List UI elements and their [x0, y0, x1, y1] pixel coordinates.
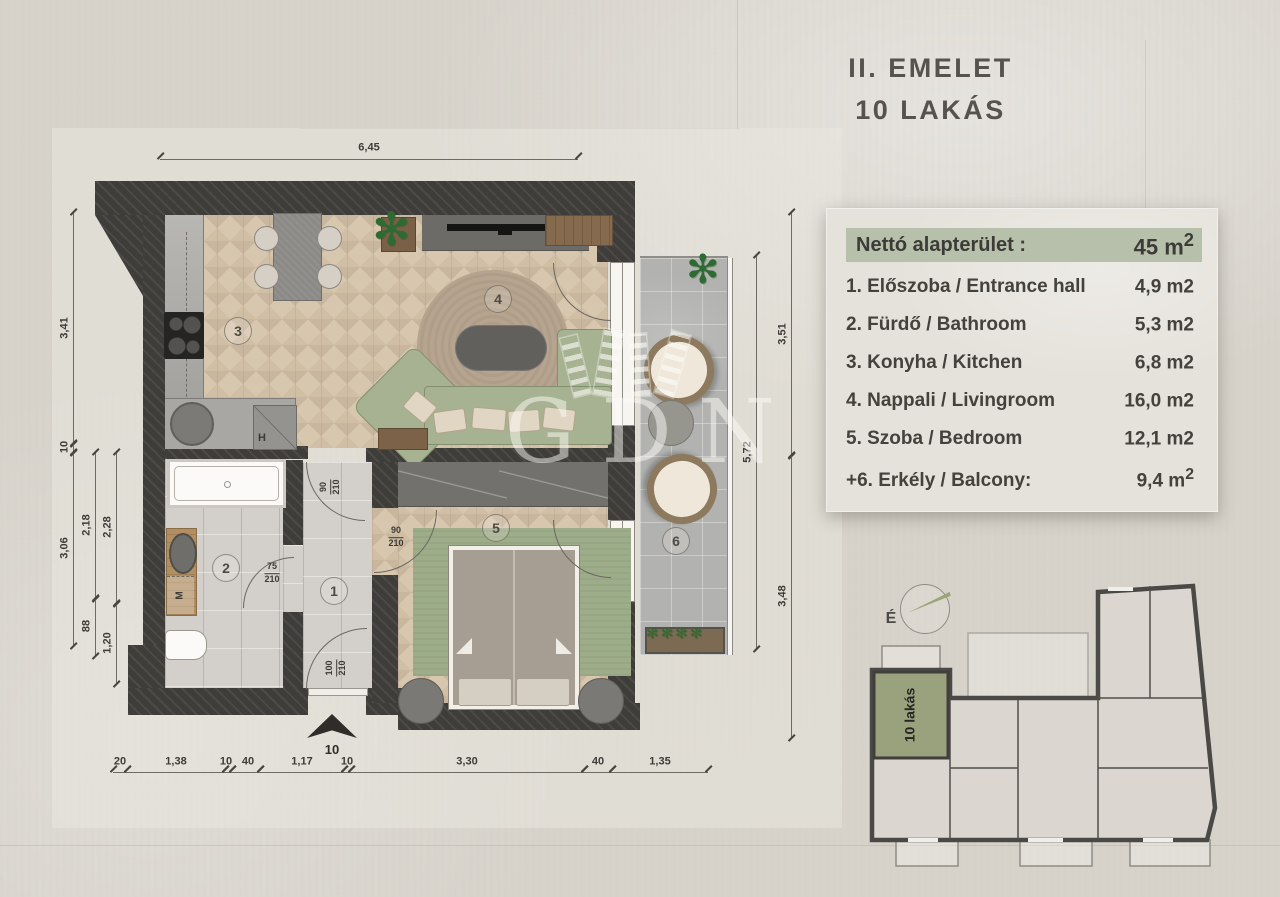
dim-line-bottom — [232, 772, 260, 773]
planter-plants-icon: ✻✻✻✻ — [646, 626, 704, 641]
legend-row-value: 5,3 m2 — [1135, 310, 1202, 336]
dim-label: 40 — [592, 757, 604, 768]
dim-line-left — [116, 452, 117, 603]
legend-header-value: 45 m2 — [1134, 229, 1202, 260]
room-number-balcony: 6 — [662, 527, 690, 555]
bathtub-drain — [224, 481, 231, 488]
legend-row-label: +6. Erkély / Balcony: — [846, 470, 1137, 492]
toilet — [165, 630, 207, 660]
door-size-height: 210 — [264, 574, 279, 585]
sofa-pillow — [433, 408, 468, 434]
balcony-plant-icon: ✻ — [686, 250, 720, 290]
room-number-bathroom: 2 — [212, 554, 240, 582]
door-size-height: 210 — [337, 659, 348, 676]
legend-header-label: Nettó alapterület : — [846, 234, 1134, 257]
dim-label: 88 — [82, 620, 93, 632]
legend-row-value: 4,9 m2 — [1135, 272, 1202, 298]
wall-bath-hall-upper — [283, 460, 303, 545]
legend-total-sup: 2 — [1184, 229, 1194, 250]
dim-line-bottom — [260, 772, 344, 773]
bathtub — [167, 459, 286, 508]
dim-line-left — [73, 212, 74, 443]
title-unit: 10 LAKÁS — [828, 90, 1033, 132]
wall-hall-bedroom-upper — [372, 462, 398, 508]
door-size-hall: 90 210 — [318, 479, 342, 494]
keyplan-unit-label: 10 lakás — [902, 688, 918, 743]
room-number-bedroom: 5 — [482, 514, 510, 542]
door-size-height: 210 — [388, 538, 403, 549]
dim-line-right — [791, 455, 792, 737]
legend-row-value: 6,8 m2 — [1135, 348, 1202, 374]
legend-row-area: 16,0 m2 — [1124, 390, 1194, 411]
legend-row-label: 2. Fürdő / Bathroom — [846, 314, 1135, 336]
legend-row: 4. Nappali / Livingroom16,0 m2 — [846, 386, 1202, 424]
keyplan-balcony — [1130, 840, 1210, 866]
dim-line-top — [160, 159, 578, 160]
keyplan-terrace — [968, 633, 1088, 698]
door-size-width: 75 — [264, 561, 279, 574]
legend-row-value: 12,1 m2 — [1124, 424, 1202, 450]
legend-row: +6. Erkély / Balcony:9,4 m2 — [846, 466, 1202, 504]
door-size-width: 90 — [388, 525, 403, 538]
pouf — [578, 678, 624, 724]
entry-threshold — [308, 688, 368, 696]
wall-top — [95, 181, 635, 215]
legend-row-sup: 2 — [1185, 466, 1194, 483]
washing-machine-label: M — [175, 591, 186, 599]
sofa-pillow — [542, 406, 576, 432]
legend-row: 3. Konyha / Kitchen6,8 m2 — [846, 348, 1202, 386]
wall-bath-hall-lower — [283, 612, 303, 688]
area-legend: Nettó alapterület : 45 m2 1. Előszoba / … — [826, 208, 1218, 512]
dim-line-right — [756, 255, 757, 648]
entrance-label: 10 — [322, 742, 342, 757]
legend-row: 5. Szoba / Bedroom12,1 m2 — [846, 424, 1202, 462]
dining-chair — [254, 226, 279, 251]
dim-label: 1,38 — [165, 757, 186, 768]
dim-line-bottom — [127, 772, 225, 773]
dim-line-bottom — [584, 772, 612, 773]
legend-row-label: 5. Szoba / Bedroom — [846, 428, 1124, 450]
wall-right-mid — [608, 426, 635, 520]
sideboard — [378, 428, 428, 450]
dim-label: 3,48 — [778, 585, 789, 606]
door-size-height: 210 — [331, 479, 342, 494]
floorplan-page: II. EMELET 10 LAKÁS H ✻ — [0, 0, 1280, 897]
legend-row-area: 5,3 m2 — [1135, 314, 1194, 335]
dining-chair — [254, 264, 279, 289]
plant-icon: ✻ — [372, 206, 411, 252]
dim-line-left — [116, 603, 117, 683]
dim-label: 2,28 — [103, 516, 114, 537]
legend-row: 2. Fürdő / Bathroom5,3 m2 — [846, 310, 1202, 348]
bed-pillow — [516, 678, 570, 706]
dim-label: 1,20 — [103, 632, 114, 653]
wardrobe — [398, 462, 608, 507]
sofa-pillow — [471, 407, 507, 432]
wall-hall-bedroom-lower — [372, 575, 398, 703]
room-number-kitchen: 3 — [224, 317, 252, 345]
legend-row-area: 12,1 m2 — [1124, 428, 1194, 449]
dim-label: 6,45 — [358, 143, 379, 154]
dim-label: 40 — [242, 757, 254, 768]
dim-line-left — [95, 598, 96, 655]
keyplan-balcony — [896, 840, 958, 866]
legend-total-value: 45 m — [1134, 235, 1184, 260]
legend-row: 1. Előszoba / Entrance hall4,9 m2 — [846, 272, 1202, 310]
legend-row-label: 1. Előszoba / Entrance hall — [846, 276, 1135, 298]
page-title: II. EMELET 10 LAKÁS — [828, 48, 1033, 132]
door-size-entry: 100 210 — [324, 659, 348, 676]
dim-label: 3,06 — [60, 537, 71, 558]
dim-label: 1,17 — [291, 757, 312, 768]
legend-row-label: 4. Nappali / Livingroom — [846, 390, 1124, 412]
title-floor: II. EMELET — [828, 48, 1033, 90]
room-number-living: 4 — [484, 285, 512, 313]
door-size-bedroom: 90 210 — [388, 525, 403, 549]
bed-pillow — [458, 678, 512, 706]
washbasin — [169, 533, 197, 574]
legend-header: Nettó alapterület : 45 m2 — [846, 228, 1202, 262]
legend-row-area: 9,4 m — [1137, 470, 1186, 491]
living-balcony-door — [610, 262, 635, 426]
coffee-table — [455, 325, 547, 371]
wall-bottom-bath — [128, 688, 308, 715]
wall-corner-bl — [128, 645, 165, 688]
washing-machine: M — [167, 576, 194, 614]
kitchen-sink — [170, 402, 214, 446]
dim-line-right — [791, 212, 792, 455]
dim-label: 10 — [341, 757, 353, 768]
dim-line-left — [95, 452, 96, 598]
pouf — [398, 678, 444, 724]
dim-label: 20 — [114, 757, 126, 768]
room-number-hall: 1 — [320, 577, 348, 605]
dim-line-bottom — [351, 772, 584, 773]
dim-label: 3,41 — [60, 317, 71, 338]
keyplan-balcony — [1020, 840, 1092, 866]
dining-table — [273, 213, 322, 301]
balcony-railing — [727, 258, 733, 655]
dim-label: 2,18 — [82, 514, 93, 535]
cooktop — [164, 312, 204, 359]
dim-line-left — [73, 452, 74, 645]
dim-label: 10 — [220, 757, 232, 768]
legend-row-area: 4,9 m2 — [1135, 276, 1194, 297]
balcony-table — [648, 400, 694, 446]
legend-row-value: 16,0 m2 — [1124, 386, 1202, 412]
dim-line-bottom — [344, 772, 351, 773]
legend-row-label: 3. Konyha / Kitchen — [846, 352, 1135, 374]
dim-label: 3,51 — [778, 323, 789, 344]
dim-label: 10 — [60, 441, 71, 453]
wall-hall-jamb — [303, 446, 308, 459]
legend-row-value: 9,4 m2 — [1137, 466, 1202, 492]
dim-line-bottom — [612, 772, 708, 773]
wall-left — [143, 215, 165, 645]
dim-line-bottom — [225, 772, 232, 773]
door-size-bath: 75 210 — [264, 561, 279, 585]
fridge-label: H — [258, 432, 266, 444]
door-size-width: 90 — [318, 479, 331, 494]
background-seam — [737, 0, 738, 130]
dining-chair — [317, 226, 342, 251]
north-label: É — [881, 610, 901, 628]
dim-label: 1,35 — [649, 757, 670, 768]
tv-stand — [498, 231, 512, 235]
sofa-pillow — [507, 409, 540, 433]
background-seam — [1145, 40, 1146, 210]
legend-row-area: 6,8 m2 — [1135, 352, 1194, 373]
door-size-width: 100 — [324, 659, 337, 676]
keyplan-balcony — [882, 646, 940, 670]
dining-chair — [317, 264, 342, 289]
legend-rows: 1. Előszoba / Entrance hall4,9 m2 2. Für… — [846, 272, 1202, 504]
wood-shelf — [545, 215, 613, 246]
compass-circle — [900, 584, 950, 634]
dim-label: 5,72 — [743, 441, 754, 462]
dim-label: 3,30 — [456, 757, 477, 768]
